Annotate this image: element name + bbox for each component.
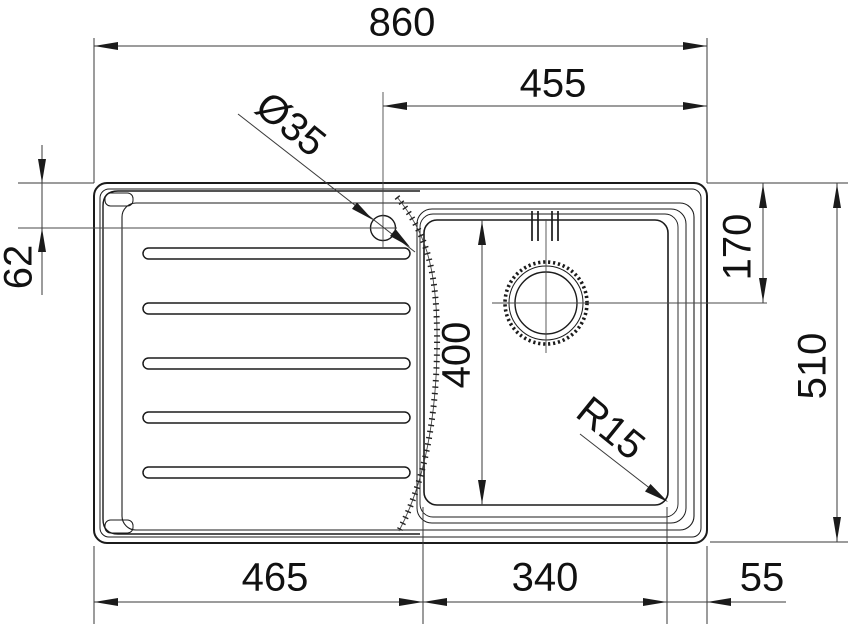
arrowhead-top [38, 159, 46, 183]
dim-overall-depth-label: 510 [791, 333, 835, 400]
groove-5 [143, 467, 410, 478]
arrowhead-top [478, 221, 486, 245]
arrowhead-465-left [94, 598, 118, 606]
dim-drainer-width-label: 465 [242, 556, 309, 600]
arrowhead-bottom [759, 278, 767, 302]
arrowhead-340-left [423, 598, 447, 606]
dim-overall-width-label: 860 [369, 1, 436, 45]
overflow-slots [532, 211, 558, 241]
arrowhead-340-right [643, 598, 667, 606]
dim-corner-radius-label: R15 [568, 388, 653, 468]
groove-2 [143, 303, 410, 314]
groove-3 [143, 358, 410, 369]
dim-bottom-chain: 465 340 55 [94, 556, 786, 606]
recess-outline [122, 203, 694, 530]
arrowhead-top [759, 184, 767, 208]
extension-lines [18, 38, 848, 624]
dim-tap-from-top-label: 62 [0, 245, 41, 290]
dim-tap-to-right: 455 [383, 62, 707, 110]
dim-drain-from-top: 170 [716, 183, 767, 303]
dim-tap-to-right-label: 455 [520, 62, 587, 106]
arrowhead-left [94, 42, 118, 50]
dim-bowl-width-label: 340 [512, 556, 579, 600]
dim-bowl-depth: 400 [435, 220, 486, 505]
arrowhead-bottom [478, 480, 486, 504]
arrowhead-bottom [833, 517, 841, 541]
dim-overall-width: 860 [94, 1, 707, 50]
groove-4 [143, 412, 410, 423]
arrowhead-55-right [707, 598, 731, 606]
arrowhead-right [683, 102, 707, 110]
dim-overall-depth: 510 [791, 183, 841, 542]
dim-right-margin-label: 55 [740, 556, 785, 600]
drainer-corner-top [105, 193, 133, 206]
arrowhead-top [833, 184, 841, 208]
drainer-grooves [143, 248, 410, 478]
sink-body [94, 183, 767, 543]
sink-technical-drawing: 860 455 Ø35 62 170 510 400 [0, 0, 860, 626]
arrowhead-465-right [399, 598, 423, 606]
drainer-corner-bottom [105, 520, 133, 533]
drawing-svg: 860 455 Ø35 62 170 510 400 [0, 0, 860, 626]
drainer-outline [103, 191, 420, 534]
arrowhead-lower [390, 229, 410, 247]
dim-corner-radius: R15 [568, 388, 668, 502]
dim-bowl-depth-label: 400 [435, 322, 479, 389]
groove-1 [143, 248, 410, 259]
arrowhead-left [383, 102, 407, 110]
dim-drain-from-top-label: 170 [716, 214, 760, 281]
dim-tap-from-top: 62 [0, 145, 46, 295]
arrowhead-upper [352, 203, 373, 221]
dim-tap-hole-diameter-label: Ø35 [247, 84, 333, 166]
arrowhead-right [683, 42, 707, 50]
dim-tap-hole-diameter: Ø35 [238, 84, 415, 252]
